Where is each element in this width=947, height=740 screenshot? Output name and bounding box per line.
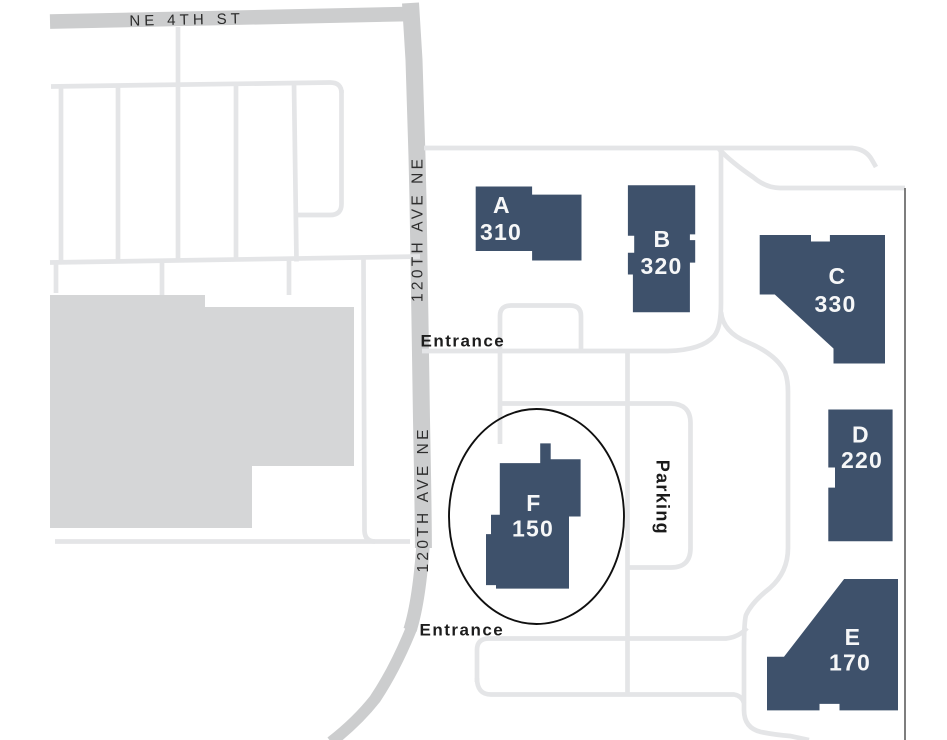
svg-text:B: B <box>653 226 670 252</box>
svg-text:170: 170 <box>829 650 871 676</box>
svg-text:C: C <box>828 263 845 289</box>
svg-text:220: 220 <box>841 447 883 473</box>
svg-text:Entrance: Entrance <box>420 621 505 640</box>
svg-text:330: 330 <box>815 291 857 317</box>
svg-text:Parking: Parking <box>653 460 673 535</box>
svg-text:320: 320 <box>641 253 683 279</box>
svg-text:Entrance: Entrance <box>421 332 506 351</box>
svg-text:120TH AVE NE: 120TH AVE NE <box>410 156 427 302</box>
svg-text:310: 310 <box>480 219 522 245</box>
svg-text:E: E <box>845 624 861 650</box>
svg-text:A: A <box>493 192 510 218</box>
svg-text:F: F <box>526 490 541 516</box>
svg-text:NE 4TH ST: NE 4TH ST <box>129 10 244 29</box>
svg-text:120TH AVE NE: 120TH AVE NE <box>415 426 432 572</box>
svg-text:D: D <box>852 422 869 448</box>
svg-text:150: 150 <box>512 516 554 542</box>
